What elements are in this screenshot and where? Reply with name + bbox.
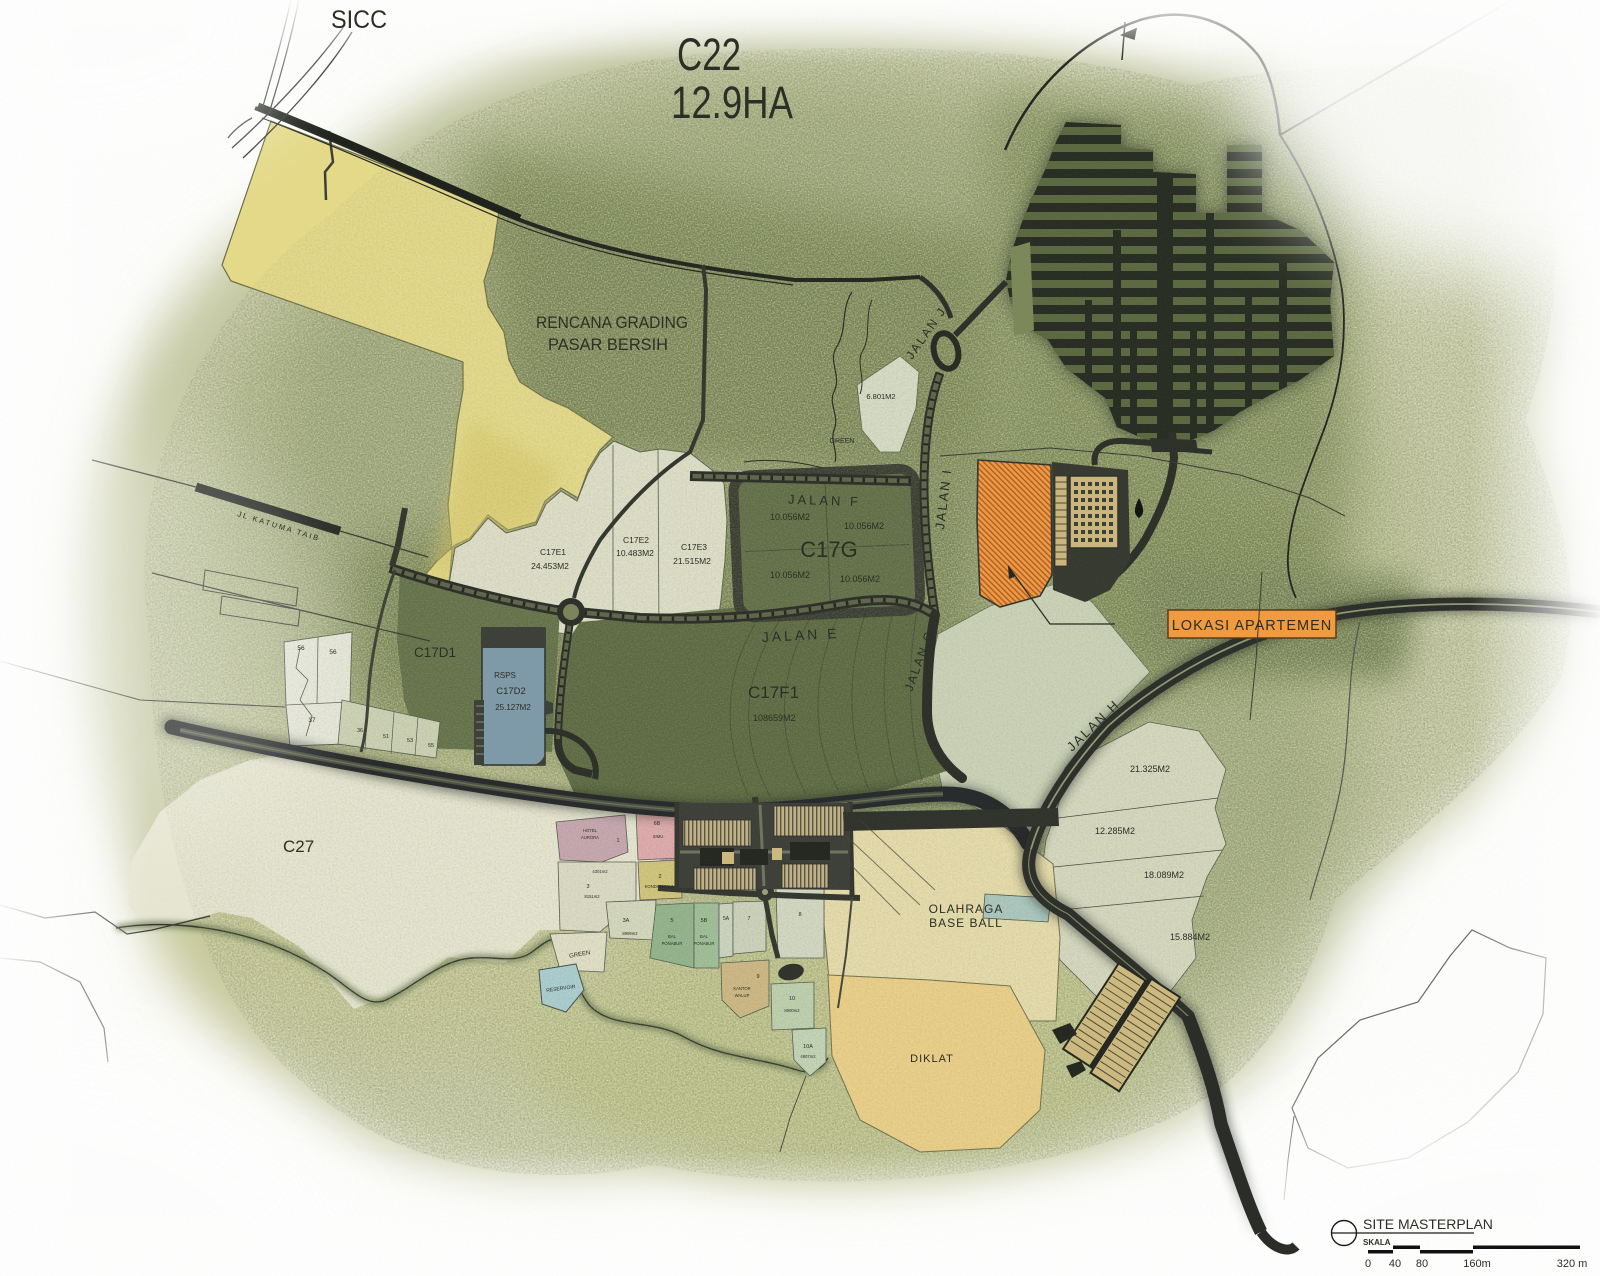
svg-text:RENCANA GRADING: RENCANA GRADING (536, 313, 688, 332)
svg-text:3: 3 (586, 884, 589, 890)
svg-text:5B: 5B (701, 918, 708, 924)
svg-text:7: 7 (747, 916, 750, 922)
svg-text:10.056M2: 10.056M2 (770, 512, 810, 522)
svg-text:6B: 6B (654, 821, 661, 827)
svg-text:SICC: SICC (331, 6, 387, 34)
svg-text:C17G: C17G (800, 537, 857, 562)
svg-text:10.483M2: 10.483M2 (616, 548, 654, 558)
svg-text:12.285M2: 12.285M2 (1095, 826, 1135, 836)
svg-text:36: 36 (357, 728, 363, 734)
svg-text:0: 0 (1365, 1258, 1371, 1270)
svg-text:AURORA: AURORA (581, 835, 599, 840)
svg-text:JALAN F: JALAN F (788, 492, 861, 510)
svg-text:10: 10 (789, 996, 795, 1002)
svg-text:KONDOMINIUM: KONDOMINIUM (645, 884, 676, 889)
svg-text:C17E1: C17E1 (540, 547, 566, 557)
svg-text:5: 5 (670, 918, 673, 924)
svg-text:PONABUR: PONABUR (694, 941, 715, 946)
svg-text:BASE BALL: BASE BALL (929, 916, 1003, 930)
svg-text:GREEN: GREEN (830, 438, 855, 445)
svg-text:10.056M2: 10.056M2 (840, 574, 880, 584)
svg-text:HOTEL: HOTEL (583, 828, 598, 833)
svg-text:SKALA: SKALA (1363, 1238, 1391, 1247)
svg-text:55: 55 (428, 743, 434, 749)
svg-text:KANTOR: KANTOR (733, 986, 750, 991)
svg-text:LOKASI APARTEMEN: LOKASI APARTEMEN (1172, 618, 1333, 634)
svg-text:C27: C27 (283, 837, 314, 856)
svg-text:51: 51 (383, 734, 389, 740)
svg-text:C17D1: C17D1 (414, 645, 456, 660)
svg-text:56: 56 (329, 649, 337, 656)
svg-text:3A: 3A (623, 918, 630, 924)
svg-text:8: 8 (798, 912, 801, 918)
svg-text:21.515M2: 21.515M2 (673, 556, 711, 566)
svg-text:24.453M2: 24.453M2 (531, 561, 569, 571)
svg-text:53: 53 (407, 738, 413, 744)
svg-text:PONABUR: PONABUR (662, 941, 683, 946)
svg-text:10A: 10A (803, 1044, 813, 1050)
svg-text:25.127M2: 25.127M2 (495, 703, 531, 712)
svg-text:OLAHRAGA: OLAHRAGA (929, 902, 1004, 916)
svg-text:21.325M2: 21.325M2 (1130, 764, 1170, 774)
svg-text:8999m2: 8999m2 (622, 931, 638, 936)
svg-text:10.056M2: 10.056M2 (770, 570, 810, 580)
svg-text:DIKLAT: DIKLAT (910, 1053, 954, 1065)
svg-text:6.801M2: 6.801M2 (866, 392, 895, 401)
svg-text:C17D2: C17D2 (496, 686, 526, 697)
svg-text:9: 9 (756, 974, 759, 980)
svg-text:PASAR BERSIH: PASAR BERSIH (548, 335, 668, 354)
svg-text:108659M2: 108659M2 (753, 713, 796, 723)
svg-text:2: 2 (658, 874, 661, 880)
svg-text:15.884M2: 15.884M2 (1170, 932, 1210, 942)
svg-text:SITE MASTERPLAN: SITE MASTERPLAN (1363, 1216, 1493, 1232)
svg-text:10.056M2: 10.056M2 (844, 521, 884, 531)
svg-text:BAL: BAL (668, 934, 677, 939)
svg-text:C17E2: C17E2 (623, 535, 649, 545)
svg-text:WALUP: WALUP (735, 993, 750, 998)
svg-text:8151m2: 8151m2 (584, 894, 600, 899)
svg-text:56: 56 (297, 645, 305, 652)
svg-text:37: 37 (308, 717, 316, 724)
svg-text:C22: C22 (677, 29, 741, 80)
svg-text:8000m2: 8000m2 (784, 1008, 800, 1013)
svg-text:1: 1 (616, 838, 619, 844)
svg-text:320 m: 320 m (1557, 1258, 1588, 1270)
svg-text:BAL: BAL (700, 934, 709, 939)
svg-text:4807m2: 4807m2 (800, 1054, 816, 1059)
svg-text:80: 80 (1416, 1258, 1428, 1270)
svg-text:4301m2: 4301m2 (592, 869, 608, 874)
svg-text:40: 40 (1389, 1258, 1401, 1270)
svg-text:5A: 5A (723, 916, 730, 922)
svg-text:RSPS: RSPS (494, 671, 516, 680)
svg-text:160m: 160m (1463, 1258, 1491, 1270)
svg-text:18.089M2: 18.089M2 (1144, 870, 1184, 880)
svg-text:C17E3: C17E3 (681, 542, 707, 552)
svg-text:12.9HA: 12.9HA (671, 77, 793, 128)
svg-text:C17F1: C17F1 (748, 683, 799, 702)
svg-text:SIMU: SIMU (653, 834, 663, 839)
